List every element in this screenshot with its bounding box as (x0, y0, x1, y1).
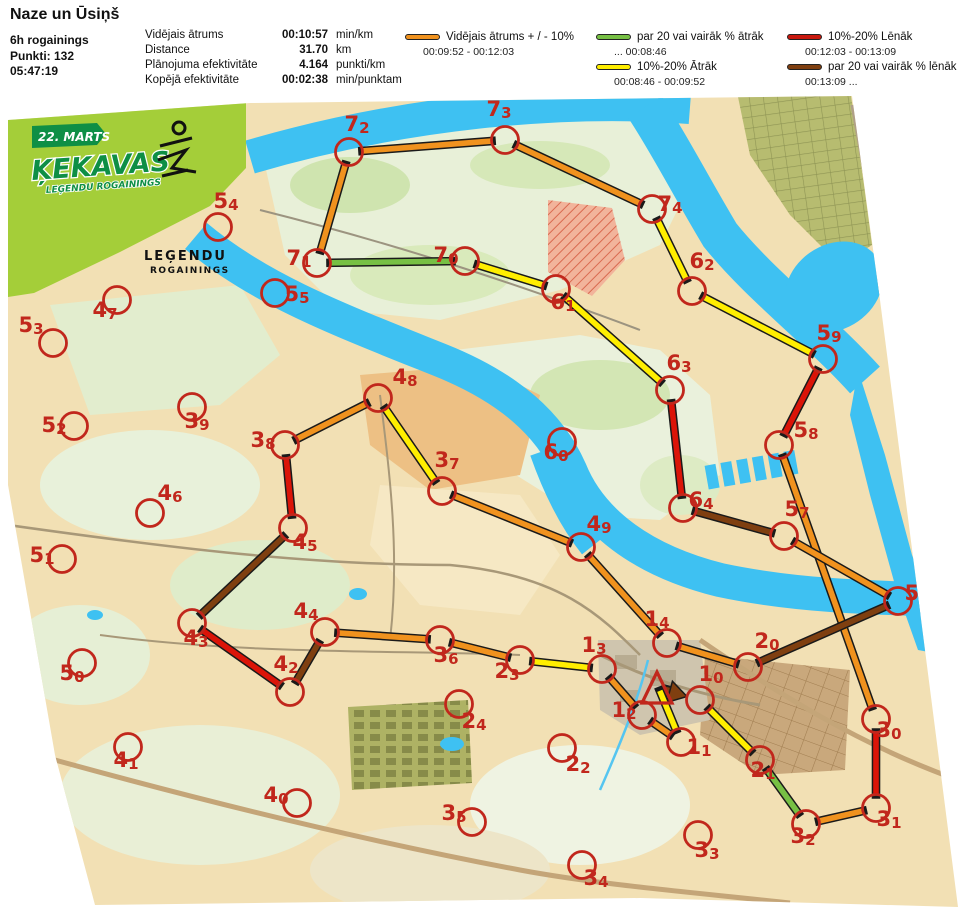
stat-value: 4.164 (270, 59, 336, 74)
legend-swatch-fast10 (596, 64, 631, 70)
legend-label: 10%-20% Ātrāk (637, 61, 717, 73)
legend-swatch-average (405, 34, 440, 40)
stat-label: Vidējais ātrums (145, 29, 270, 44)
stat-label: Distance (145, 44, 270, 59)
legend-range: 00:09:52 - 00:12:03 (405, 43, 574, 58)
legend-label: par 20 vai vairāk % lēnāk (828, 61, 956, 73)
stat-value: 00:02:38 (270, 74, 336, 89)
logo-brand-1: LEĢENDU (144, 249, 227, 264)
route-map: 22. MARTS ĶEKAVAS LEĢENDU ROGAININGS LEĢ… (0, 95, 973, 909)
stat-unit: min/km (336, 29, 402, 44)
table-row: Kopējā efektivitāte 00:02:38 min/punktam (145, 74, 402, 89)
legend-range: 00:08:46 - 00:09:52 (596, 73, 717, 88)
stat-unit: punkti/km (336, 59, 402, 74)
control-label: 56 (904, 581, 929, 606)
legend-item-fast10: 10%-20% Ātrāk 00:08:46 - 00:09:52 (596, 61, 717, 88)
stats-table: Vidējais ātrums 00:10:57 min/km Distance… (145, 29, 402, 89)
table-row: Vidējais ātrums 00:10:57 min/km (145, 29, 402, 44)
stat-unit: km (336, 44, 402, 59)
logo-brand-2: ROGAININGS (150, 266, 230, 276)
stat-unit: min/punktam (336, 74, 402, 89)
legend-label: par 20 vai vairāk % ātrāk (637, 31, 764, 43)
legend-range: 00:12:03 - 00:13:09 (787, 43, 912, 58)
legend-range: 00:13:09 ... (787, 73, 956, 88)
legend-range: ... 00:08:46 (596, 43, 764, 58)
event-points: Punkti: 132 (10, 49, 89, 65)
event-time: 05:47:19 (10, 64, 89, 80)
stat-value: 31.70 (270, 44, 336, 59)
stat-label: Plānojuma efektivitāte (145, 59, 270, 74)
legend-item-fast20: par 20 vai vairāk % ātrāk ... 00:08:46 (596, 31, 764, 58)
table-row: Distance 31.70 km (145, 44, 402, 59)
header: Naze un Ūsiņš 6h rogainings Punkti: 132 … (0, 0, 973, 95)
stat-label: Kopējā efektivitāte (145, 74, 270, 89)
legend-swatch-fast20 (596, 34, 631, 40)
page-title: Naze un Ūsiņš (10, 6, 119, 24)
legend-label: 10%-20% Lēnāk (828, 31, 912, 43)
legend-swatch-slow10 (787, 34, 822, 40)
rogaining-results-page: Naze un Ūsiņš 6h rogainings Punkti: 132 … (0, 0, 973, 909)
event-info: 6h rogainings Punkti: 132 05:47:19 (10, 33, 89, 80)
legend-label: Vidējais ātrums + / - 10% (446, 31, 574, 43)
logo-date: 22. MARTS (38, 130, 110, 144)
event-class: 6h rogainings (10, 33, 89, 49)
legend-item-average: Vidējais ātrums + / - 10% 00:09:52 - 00:… (405, 31, 574, 58)
legend-swatch-slow20 (787, 64, 822, 70)
legend-item-slow20: par 20 vai vairāk % lēnāk 00:13:09 ... (787, 61, 956, 88)
legend-item-slow10: 10%-20% Lēnāk 00:12:03 - 00:13:09 (787, 31, 912, 58)
stat-value: 00:10:57 (270, 29, 336, 44)
table-row: Plānojuma efektivitāte 4.164 punkti/km (145, 59, 402, 74)
